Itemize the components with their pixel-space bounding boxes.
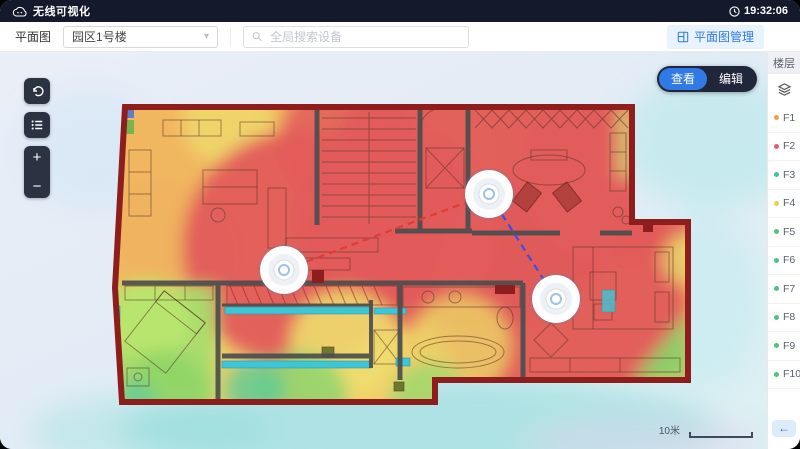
brand: 无线可视化: [12, 3, 91, 19]
floor-item-f2[interactable]: F2: [768, 133, 800, 162]
floorplan-manage-label: 平面图管理: [694, 28, 754, 45]
chevron-down-icon: ▾: [204, 32, 209, 42]
floor-sidebar: 楼层 F1F2F3F4F5F6F7F8F9F10 ←: [767, 52, 800, 449]
floor-label: F1: [783, 112, 795, 124]
floor-item-f8[interactable]: F8: [768, 304, 800, 333]
toolbar: 平面图 园区1号楼 ▾ 平面图管理: [0, 22, 800, 52]
floor-item-f9[interactable]: F9: [768, 332, 800, 361]
cloud-logo-icon: [12, 6, 27, 17]
building-select-value: 园区1号楼: [72, 28, 127, 45]
floor-status-dot: [774, 201, 779, 206]
ap-icon: [279, 265, 289, 275]
building-select[interactable]: 园区1号楼 ▾: [63, 26, 218, 48]
plan-label: 平面图: [15, 28, 51, 45]
ap-device-ap-2[interactable]: [463, 168, 515, 220]
search-input[interactable]: [268, 29, 460, 45]
floor-item-f6[interactable]: F6: [768, 247, 800, 276]
undo-icon: [30, 84, 44, 98]
ap-device-ap-1[interactable]: [258, 244, 310, 296]
clock-icon: [729, 6, 740, 17]
floor-status-dot: [774, 315, 779, 320]
ap-icon: [484, 189, 494, 199]
zoom-out-button[interactable]: −: [24, 179, 50, 194]
floor-label: F4: [783, 197, 795, 209]
layers-button[interactable]: [768, 74, 800, 104]
floor-list: F1F2F3F4F5F6F7F8F9F10: [768, 104, 800, 389]
undo-button[interactable]: [24, 78, 50, 104]
search-icon: [252, 31, 262, 42]
floor-status-dot: [774, 115, 779, 120]
mode-toggle: 查看 编辑: [657, 66, 757, 92]
map-tools: + −: [24, 78, 50, 198]
floor-status-dot: [774, 258, 779, 263]
floor-label: F3: [783, 169, 795, 181]
floor-status-dot: [774, 144, 779, 149]
wireless-visualization-app: 无线可视化 19:32:06 平面图 园区1号楼 ▾: [0, 0, 800, 449]
floor-item-f5[interactable]: F5: [768, 218, 800, 247]
current-time: 19:32:06: [744, 5, 788, 17]
map-scale: 10米: [659, 422, 753, 438]
floor-status-dot: [774, 229, 779, 234]
toolbar-divider: [230, 28, 231, 46]
floorplan-svg: [0, 52, 767, 449]
floor-item-f7[interactable]: F7: [768, 275, 800, 304]
floor-label: F6: [783, 254, 795, 266]
floor-label: F5: [783, 226, 795, 238]
floor-label: F7: [783, 283, 795, 295]
clock: 19:32:06: [729, 5, 788, 17]
floorplan-manage-icon: [677, 31, 689, 43]
collapse-sidebar-button[interactable]: ←: [772, 420, 796, 437]
view-mode-button[interactable]: 查看: [659, 68, 707, 90]
floor-status-dot: [774, 343, 779, 348]
floor-label: F2: [783, 140, 795, 152]
edit-mode-button[interactable]: 编辑: [707, 68, 755, 90]
zoom-control: + −: [24, 146, 50, 198]
floor-label: F8: [783, 311, 795, 323]
floor-label: F9: [783, 340, 795, 352]
title-bar: 无线可视化 19:32:06: [0, 0, 800, 22]
floor-sidebar-header: 楼层: [768, 52, 800, 74]
app-title: 无线可视化: [33, 3, 91, 19]
ap-icon: [551, 294, 561, 304]
floorplan-manage-button[interactable]: 平面图管理: [667, 25, 764, 49]
scale-label: 10米: [659, 422, 680, 438]
scale-bar: [689, 432, 753, 438]
floor-label: F10: [783, 368, 800, 380]
zoom-in-button[interactable]: +: [24, 150, 50, 165]
floor-item-f3[interactable]: F3: [768, 161, 800, 190]
legend-button[interactable]: [24, 112, 50, 138]
device-search-box[interactable]: [243, 26, 469, 48]
ap-device-ap-3[interactable]: [530, 273, 582, 325]
floor-item-f4[interactable]: F4: [768, 190, 800, 219]
map-canvas[interactable]: + − 查看 编辑 10米: [0, 52, 767, 449]
floor-item-f1[interactable]: F1: [768, 104, 800, 133]
floor-status-dot: [774, 372, 779, 377]
legend-list-icon: [30, 118, 44, 132]
floor-status-dot: [774, 172, 779, 177]
layers-icon: [777, 82, 792, 97]
floor-status-dot: [774, 286, 779, 291]
floor-item-f10[interactable]: F10: [768, 361, 800, 390]
